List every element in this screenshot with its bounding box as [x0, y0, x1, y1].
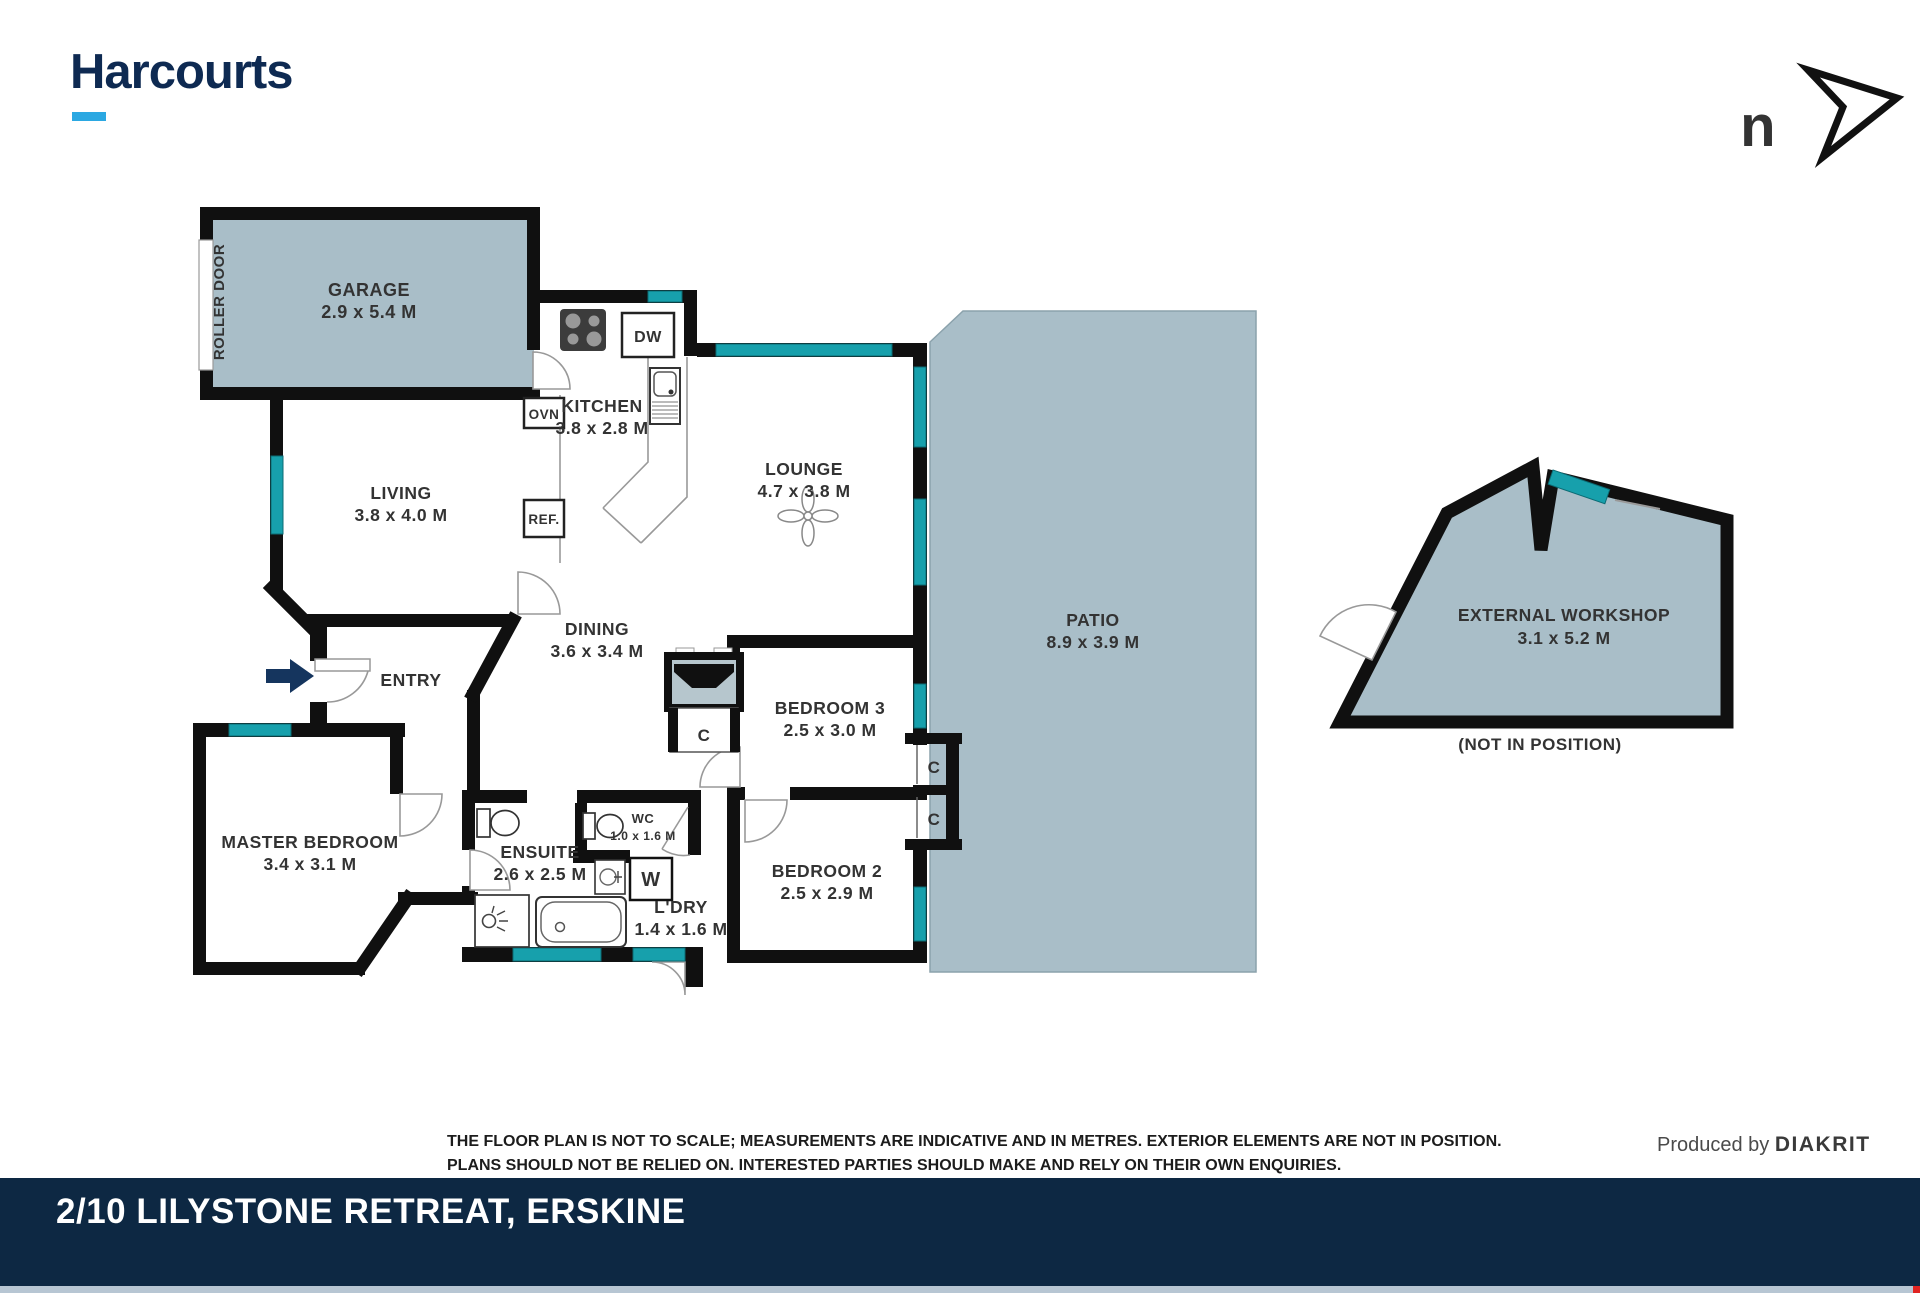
room-label-bedroom2: BEDROOM 2 — [772, 861, 882, 881]
room-dims-laundry: 1.4 x 1.6 M — [634, 919, 727, 939]
bottom-strip — [0, 1286, 1920, 1293]
front-door-leaf — [315, 659, 370, 671]
room-dims-patio: 8.9 x 3.9 M — [1046, 632, 1139, 652]
address-bar: 2/10 LILYSTONE RETREAT, ERSKINE — [0, 1178, 1920, 1286]
closet-label: C — [928, 758, 941, 777]
linen-cupboard-icon — [668, 648, 740, 708]
bench-line — [603, 508, 641, 543]
property-address: 2/10 LILYSTONE RETREAT, ERSKINE — [56, 1192, 685, 1232]
ensuite-toilet-icon — [477, 809, 519, 837]
entry-label: ENTRY — [380, 670, 441, 690]
dishwasher-label: DW — [634, 329, 662, 346]
room-label-wc: WC — [632, 811, 655, 826]
disclaimer-text: THE FLOOR PLAN IS NOT TO SCALE; MEASUREM… — [447, 1130, 1567, 1178]
living-dining-door-arc — [518, 572, 560, 614]
room-dims-bedroom2: 2.5 x 2.9 M — [780, 883, 873, 903]
room-dims-lounge: 4.7 x 3.8 M — [757, 481, 850, 501]
oven-label: OVN — [529, 407, 560, 422]
room-dims-ensuite: 2.6 x 2.5 M — [493, 864, 586, 884]
north-letter: n — [1740, 94, 1776, 159]
shaded-areas — [206, 213, 1727, 972]
producer-credit: Produced by DIAKRIT — [1657, 1133, 1871, 1157]
garage-door-arc — [533, 352, 570, 389]
cooktop-icon — [560, 309, 606, 351]
workshop-area — [1340, 467, 1727, 722]
master-door-arc — [400, 794, 442, 836]
room-dims-workshop: 3.1 x 5.2 M — [1517, 628, 1610, 648]
roller-door-label: ROLLER DOOR — [211, 244, 228, 360]
room-dims-kitchen: 3.8 x 2.8 M — [555, 418, 648, 438]
not-in-position-label: (NOT IN POSITION) — [1458, 735, 1621, 754]
room-dims-wc: 1.0 x 1.6 M — [610, 829, 676, 843]
disclaimer-line-1: THE FLOOR PLAN IS NOT TO SCALE; MEASUREM… — [447, 1130, 1567, 1154]
room-label-living: LIVING — [370, 483, 431, 503]
room-label-garage: GARAGE — [328, 280, 410, 300]
bath-icon — [536, 897, 626, 947]
fridge-label: REF. — [528, 512, 559, 527]
room-label-kitchen: KITCHEN — [561, 396, 642, 416]
room-dims-bedroom3: 2.5 x 3.0 M — [783, 720, 876, 740]
shower-icon — [475, 895, 529, 947]
room-label-dining: DINING — [565, 619, 629, 639]
room-dims-master: 3.4 x 3.1 M — [263, 854, 356, 874]
bedroom3-door-arc — [700, 747, 740, 787]
room-label-bedroom3: BEDROOM 3 — [775, 698, 885, 718]
front-door-arc — [327, 671, 368, 702]
room-label-workshop: EXTERNAL WORKSHOP — [1458, 605, 1670, 625]
room-label-ensuite: ENSUITE — [500, 842, 579, 862]
room-dims-garage: 2.9 x 5.4 M — [321, 302, 417, 322]
room-dims-dining: 3.6 x 3.4 M — [550, 641, 643, 661]
washer-label: W — [641, 869, 660, 891]
wc-door-arc — [662, 849, 690, 855]
room-dims-living: 3.8 x 4.0 M — [354, 505, 447, 525]
room-label-lounge: LOUNGE — [765, 459, 843, 479]
room-label-patio: PATIO — [1066, 610, 1119, 630]
room-label-laundry: L'DRY — [654, 897, 708, 917]
north-arrow-icon: n — [1740, 70, 1897, 159]
floorplan-page: Harcourts — [0, 0, 1920, 1293]
red-corner-artifact — [1913, 1286, 1920, 1293]
produced-by-text: Produced by — [1657, 1134, 1769, 1156]
kitchen-sink-icon — [650, 368, 680, 424]
floorplan-drawing: n GARAGE 2.9 x 5.4 M ROLLER DOOR KITCHEN… — [0, 0, 1920, 1293]
room-label-master: MASTER BEDROOM — [221, 832, 398, 852]
closet-label: C — [928, 810, 941, 829]
disclaimer-line-2: PLANS SHOULD NOT BE RELIED ON. INTERESTE… — [447, 1154, 1567, 1178]
laundry-tub-icon — [595, 860, 625, 894]
producer-name: DIAKRIT — [1775, 1133, 1871, 1156]
entry-arrow-icon — [266, 659, 314, 693]
closet-label: C — [698, 726, 711, 745]
bedroom2-door-arc — [745, 800, 787, 842]
laundry-exit-door-arc — [652, 962, 685, 995]
